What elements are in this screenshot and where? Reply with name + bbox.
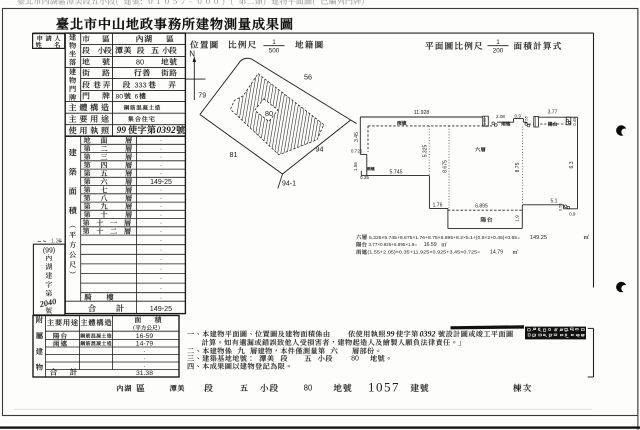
svg-text:0392: 0392 <box>157 125 176 136</box>
svg-text:8.75: 8.75 <box>515 162 521 172</box>
svg-text:6.895: 6.895 <box>475 203 488 209</box>
svg-text:·: · <box>160 146 162 153</box>
svg-text:11.928: 11.928 <box>414 110 430 116</box>
svg-text:14.79: 14.79 <box>490 250 503 256</box>
svg-text:0392: 0392 <box>420 329 436 338</box>
svg-text:56: 56 <box>304 73 312 82</box>
svg-text:1: 1 <box>496 39 500 46</box>
svg-text:16.59: 16.59 <box>424 242 437 248</box>
svg-text:99: 99 <box>117 125 127 136</box>
svg-text:·: · <box>160 220 162 227</box>
svg-text:·: · <box>160 212 162 219</box>
svg-text:6.3: 6.3 <box>569 161 575 168</box>
svg-text:6: 6 <box>135 93 139 100</box>
svg-text:80: 80 <box>116 93 124 100</box>
svg-text:·: · <box>160 237 162 244</box>
svg-text:·: · <box>160 276 162 283</box>
svg-text:·: · <box>143 348 145 355</box>
svg-text:(1.55+2.05)×0.35+11.925×0.925+: (1.55+2.05)×0.35+11.925×0.925+3.45×0.725… <box>367 250 480 255</box>
svg-text:94-1: 94-1 <box>282 180 296 187</box>
svg-text:3.77×0.925+6.895×1.9=: 3.77×0.925+6.895×1.9= <box>369 242 418 247</box>
svg-text:5.745: 5.745 <box>390 170 403 176</box>
svg-text:3.45: 3.45 <box>354 132 360 142</box>
svg-text:0.725: 0.725 <box>351 149 363 154</box>
svg-text:149-25: 149-25 <box>150 179 172 186</box>
svg-text:149-25: 149-25 <box>150 304 172 313</box>
svg-text:149.25: 149.25 <box>530 235 547 241</box>
svg-text:79: 79 <box>198 93 206 100</box>
svg-text:·: · <box>160 204 162 211</box>
svg-text:5.325: 5.325 <box>423 145 429 158</box>
svg-text:333: 333 <box>135 80 147 89</box>
svg-text:80: 80 <box>351 356 359 363</box>
svg-text:14-79: 14-79 <box>136 341 154 348</box>
svg-text:0.35: 0.35 <box>360 175 369 180</box>
svg-text:·: · <box>160 138 162 145</box>
svg-text:·: · <box>160 285 162 292</box>
svg-text:·: · <box>160 247 162 254</box>
svg-text:·: · <box>160 266 162 273</box>
svg-text:81: 81 <box>230 150 238 159</box>
svg-text:·: · <box>160 187 162 194</box>
svg-text:1: 1 <box>272 39 276 46</box>
svg-text:31.38: 31.38 <box>136 370 153 377</box>
svg-text:·: · <box>160 162 162 169</box>
svg-text:80: 80 <box>136 57 144 66</box>
svg-text:·: · <box>160 228 162 235</box>
svg-text:1.9: 1.9 <box>515 215 521 222</box>
svg-text:500: 500 <box>269 47 280 54</box>
svg-text:200: 200 <box>493 47 504 54</box>
svg-text:0.55: 0.55 <box>523 115 528 124</box>
svg-text:1.55: 1.55 <box>353 162 358 171</box>
svg-text:0.55: 0.55 <box>482 117 487 126</box>
svg-text:3.77: 3.77 <box>548 110 558 116</box>
svg-text:80: 80 <box>304 384 313 393</box>
svg-text:·: · <box>160 171 162 178</box>
svg-text:8.675: 8.675 <box>443 160 449 173</box>
svg-text:0.9: 0.9 <box>569 212 576 217</box>
svg-text:0.45: 0.45 <box>572 117 577 126</box>
svg-text:1057: 1057 <box>368 379 400 394</box>
svg-text:0.55: 0.55 <box>558 203 563 212</box>
svg-text:1.76: 1.76 <box>433 203 443 209</box>
svg-text:·: · <box>160 295 162 302</box>
svg-text:0.9: 0.9 <box>515 113 522 118</box>
svg-text:·: · <box>160 195 162 202</box>
svg-text:99: 99 <box>387 329 395 338</box>
svg-text:·: · <box>160 154 162 161</box>
svg-text:16-59: 16-59 <box>136 333 154 340</box>
svg-text:·: · <box>143 356 145 363</box>
svg-text:80: 80 <box>265 109 273 118</box>
svg-text:94: 94 <box>316 145 324 154</box>
svg-text:5.325×5.745+8.675×1.76+8.75×6.: 5.325×5.745+8.675×1.76+8.75×6.895+8.2×5.… <box>369 235 520 240</box>
svg-text:·: · <box>160 257 162 264</box>
svg-text:2.08: 2.08 <box>496 114 505 119</box>
svg-text:(99): (99) <box>43 248 55 255</box>
